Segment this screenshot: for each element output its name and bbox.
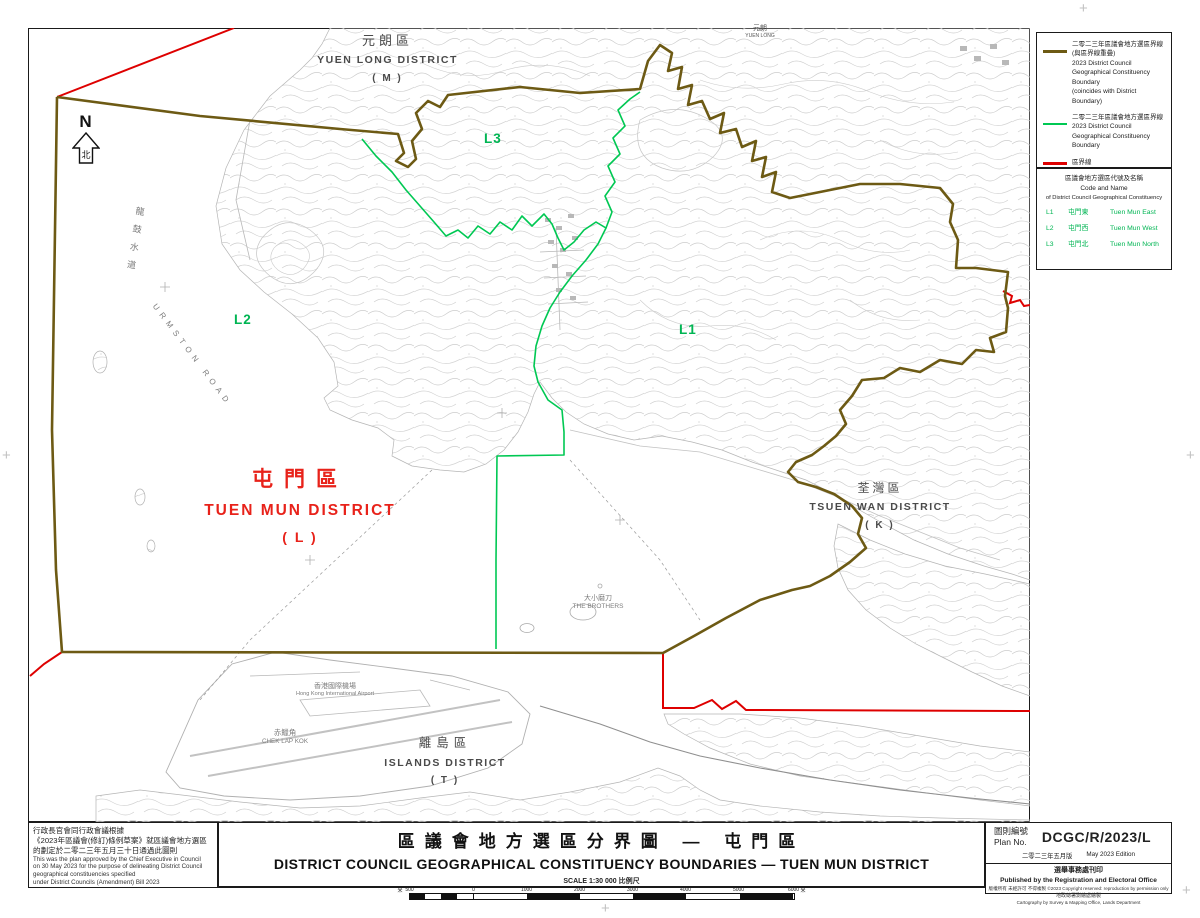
codes-title-en1: Code and Name <box>1040 184 1168 194</box>
edition-zh: 二零二三年五月版 <box>1022 851 1072 860</box>
code-row-l3: L3 屯門北 Tuen Mun North <box>1040 240 1168 250</box>
code-row-l1: L1 屯門東 Tuen Mun East <box>1040 208 1168 218</box>
edition-en: May 2023 Edition <box>1086 851 1135 860</box>
scale-bar: 米 米 500 0 1000 2000 3000 4000 5000 6000 <box>409 893 795 900</box>
constituency-code-l2: L2 <box>234 312 252 327</box>
registration-cross: + <box>2 447 11 464</box>
plan-no-label-en: Plan No. <box>994 837 1028 848</box>
scale-tick: 6000 <box>788 887 799 893</box>
north-arrow: N 北 <box>66 112 106 169</box>
constituency-code-l1: L1 <box>679 322 697 337</box>
copyright-line: 版權所有 未經許可 不得複製 ©2023 Copyright reserved:… <box>986 886 1171 892</box>
constituency-code-l3: L3 <box>484 131 502 146</box>
plan-no-label-zh: 圖則編號 <box>994 826 1028 837</box>
scale-tick: 4000 <box>680 887 691 893</box>
district-label-tuen-mun: 屯門區 TUEN MUN DISTRICT ( L ) <box>165 468 435 546</box>
district-label-tsuen-wan: 荃灣區 TSUEN WAN DISTRICT ( K ) <box>795 482 965 531</box>
red-line-swatch <box>1043 162 1067 165</box>
green-line-swatch <box>1043 123 1067 125</box>
legend-item-coincident: 二零二三年區議會地方選區界線 (與區界線重疊) 2023 District Co… <box>1041 40 1167 106</box>
scale-tick: 2000 <box>574 887 585 893</box>
plan-number: DCGC/R/2023/L <box>1028 829 1165 845</box>
plan-number-block: 圖則編號 Plan No. DCGC/R/2023/L 二零二三年五月版 May… <box>985 822 1172 894</box>
north-char-glyph: 北 <box>81 150 90 160</box>
scale-tick: 1000 <box>521 887 532 893</box>
cartography-en: Cartography by Survey & Mapping Office, … <box>986 900 1171 906</box>
approval-note: 行政長官會同行政會議根據 《2023年區議會(修訂)條例草案》就區議會地方選區 … <box>28 822 218 888</box>
map-title-block: 區議會地方選區分界圖 — 屯門區 DISTRICT COUNCIL GEOGRA… <box>218 822 985 888</box>
legend-codes: 區議會地方選區代號及名稱 Code and Name of District C… <box>1036 168 1172 270</box>
brothers-label: 大小磨刀 THE BROTHERS <box>556 594 640 612</box>
plan-sheet: N 北 元朗區 YUEN LONG DISTRICT ( M ) 荃灣區 TSU… <box>0 0 1200 918</box>
map-title-en: DISTRICT COUNCIL GEOGRAPHICAL CONSTITUEN… <box>219 856 984 872</box>
code-row-l2: L2 屯門西 Tuen Mun West <box>1040 224 1168 234</box>
chek-lap-kok-label: 赤鱲角 CHEK LAP KOK <box>243 728 327 746</box>
publisher-zh: 選舉事務處刊印 <box>986 866 1171 875</box>
publisher-en: Published by the Registration and Electo… <box>986 877 1171 886</box>
map-canvas <box>28 28 1030 822</box>
registration-cross: + <box>1186 447 1195 464</box>
district-label-yuen-long: 元朗區 YUEN LONG DISTRICT ( M ) <box>295 34 480 84</box>
north-arrow-icon: 北 <box>72 132 100 164</box>
land-masses <box>93 28 1030 822</box>
district-label-islands: 離島區 ISLANDS DISTRICT ( T ) <box>355 737 535 786</box>
scale-tick: 5000 <box>733 887 744 893</box>
airport-label: 香港國際機場 Hong Kong International Airport <box>275 682 395 698</box>
codes-title-zh: 區議會地方選區代號及名稱 <box>1040 174 1168 184</box>
codes-title-en2: of District Council Geographical Constit… <box>1040 194 1168 203</box>
scale-tick: 500 <box>405 887 413 893</box>
olive-line-swatch <box>1043 50 1067 53</box>
registration-cross: + <box>1182 882 1191 899</box>
scale-unit-left: 米 <box>398 887 403 894</box>
legend-item-constituency: 二零二三年區議會地方選區界線 2023 District Council Geo… <box>1041 113 1167 151</box>
scale-tick: 0 <box>472 887 475 893</box>
registration-cross: + <box>601 900 610 917</box>
registration-cross: + <box>1079 0 1088 17</box>
legend-boundaries: 二零二三年區議會地方選區界線 (與區界線重疊) 2023 District Co… <box>1036 32 1172 168</box>
yuen-long-town-label: 元朗 YUEN LONG <box>736 24 784 40</box>
cartography-zh: 地政總署測繪處繪製 <box>986 893 1171 900</box>
map-title-zh: 區議會地方選區分界圖 — 屯門區 <box>219 827 984 852</box>
scale-label: SCALE 1:30 000 比例尺 <box>219 876 984 886</box>
scale-tick: 3000 <box>627 887 638 893</box>
scale-unit-right: 米 <box>800 887 805 894</box>
north-letter: N <box>66 112 106 132</box>
